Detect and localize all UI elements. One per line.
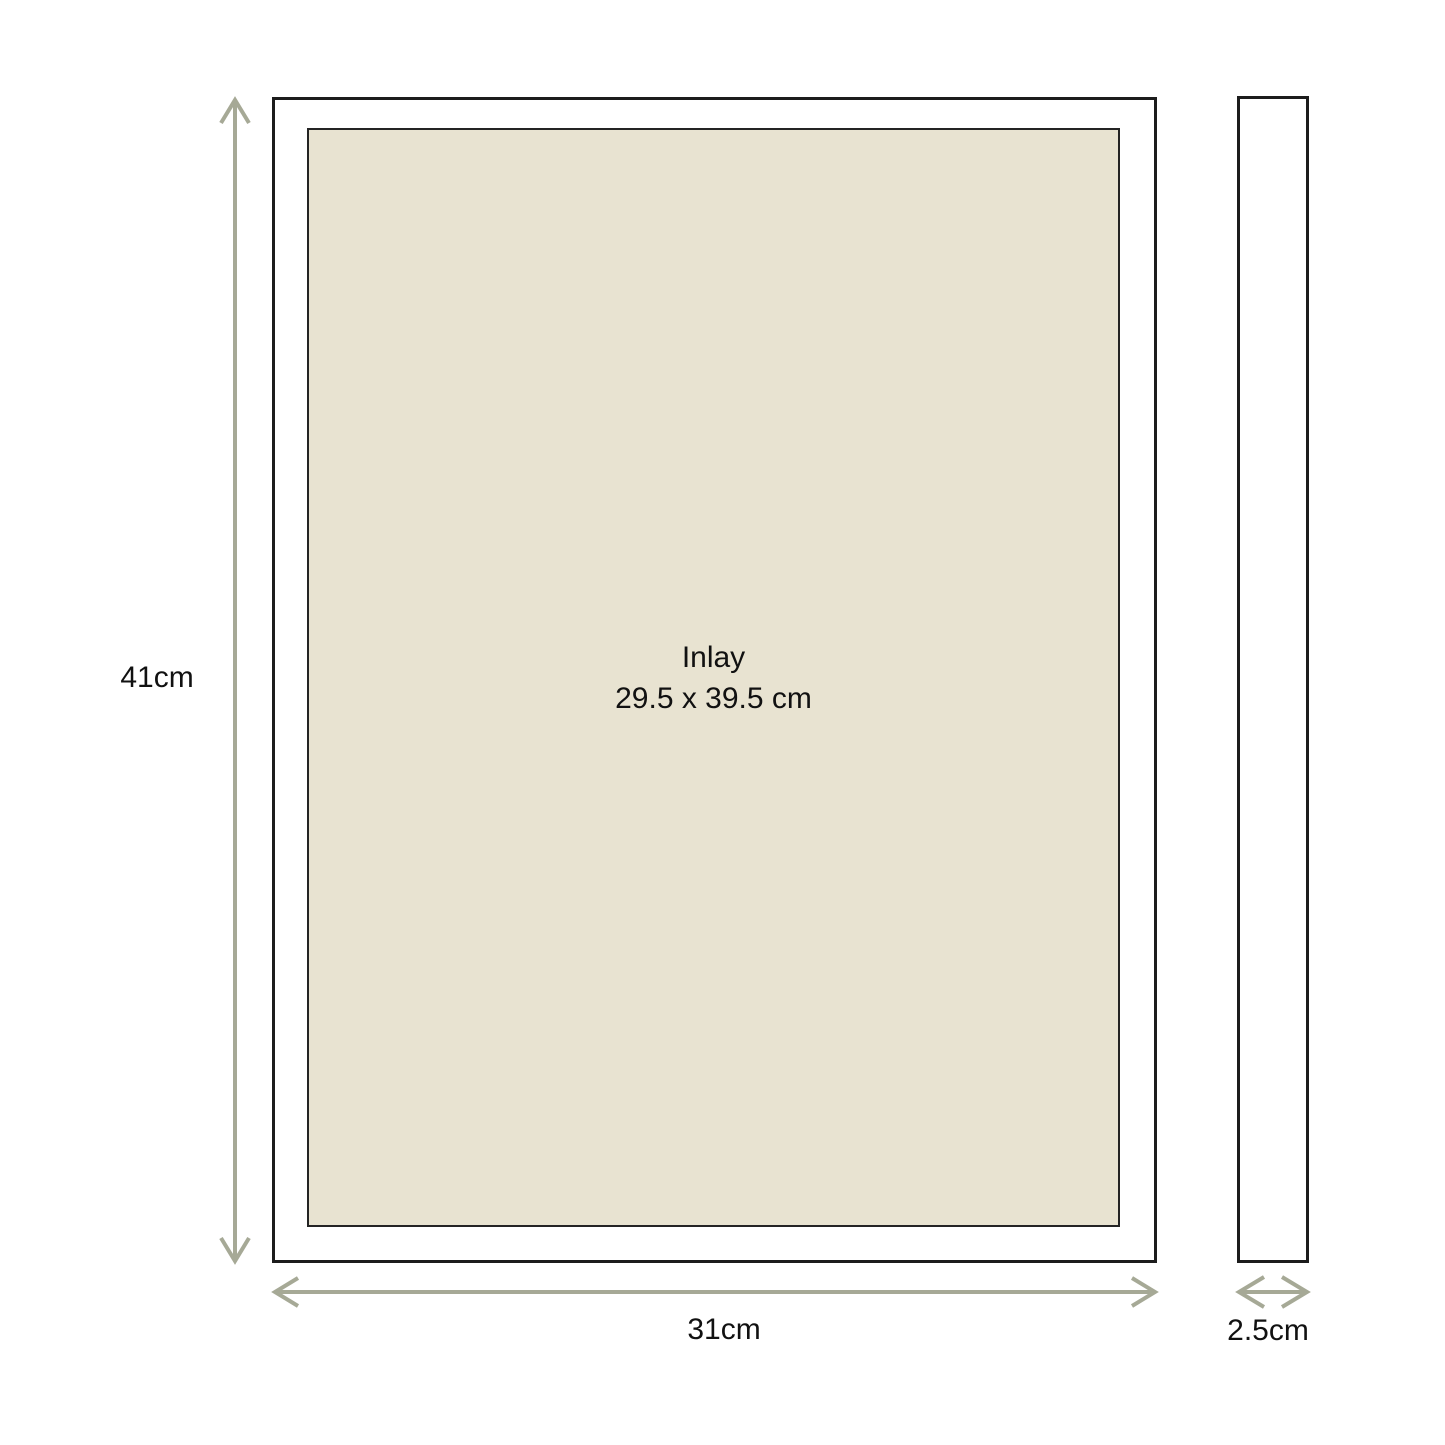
- height-dimension-label: 41cm: [120, 661, 193, 695]
- arrowhead-left-icon: [275, 1278, 298, 1306]
- inlay-size: 29.5 x 39.5 cm: [615, 678, 812, 719]
- arrowhead-left-icon: [1239, 1277, 1264, 1307]
- depth-dimension-label: 2.5cm: [1227, 1314, 1309, 1348]
- width-dimension-label: 31cm: [687, 1313, 760, 1347]
- arrowhead-right-icon: [1282, 1277, 1307, 1307]
- inlay-area: Inlay 29.5 x 39.5 cm: [307, 128, 1120, 1227]
- height-arrow: [221, 100, 249, 1261]
- inlay-text: Inlay 29.5 x 39.5 cm: [615, 637, 812, 719]
- arrowhead-down-icon: [221, 1238, 249, 1261]
- arrowhead-up-icon: [221, 100, 249, 123]
- frame-dimension-diagram: Inlay 29.5 x 39.5 cm 41cm 31cm 2.5cm: [0, 0, 1445, 1445]
- depth-arrow: [1239, 1277, 1307, 1307]
- frame-front-view: Inlay 29.5 x 39.5 cm: [272, 97, 1157, 1263]
- width-arrow: [275, 1278, 1155, 1306]
- arrowhead-right-icon: [1132, 1278, 1155, 1306]
- inlay-title: Inlay: [615, 637, 812, 678]
- frame-side-view: [1237, 96, 1309, 1263]
